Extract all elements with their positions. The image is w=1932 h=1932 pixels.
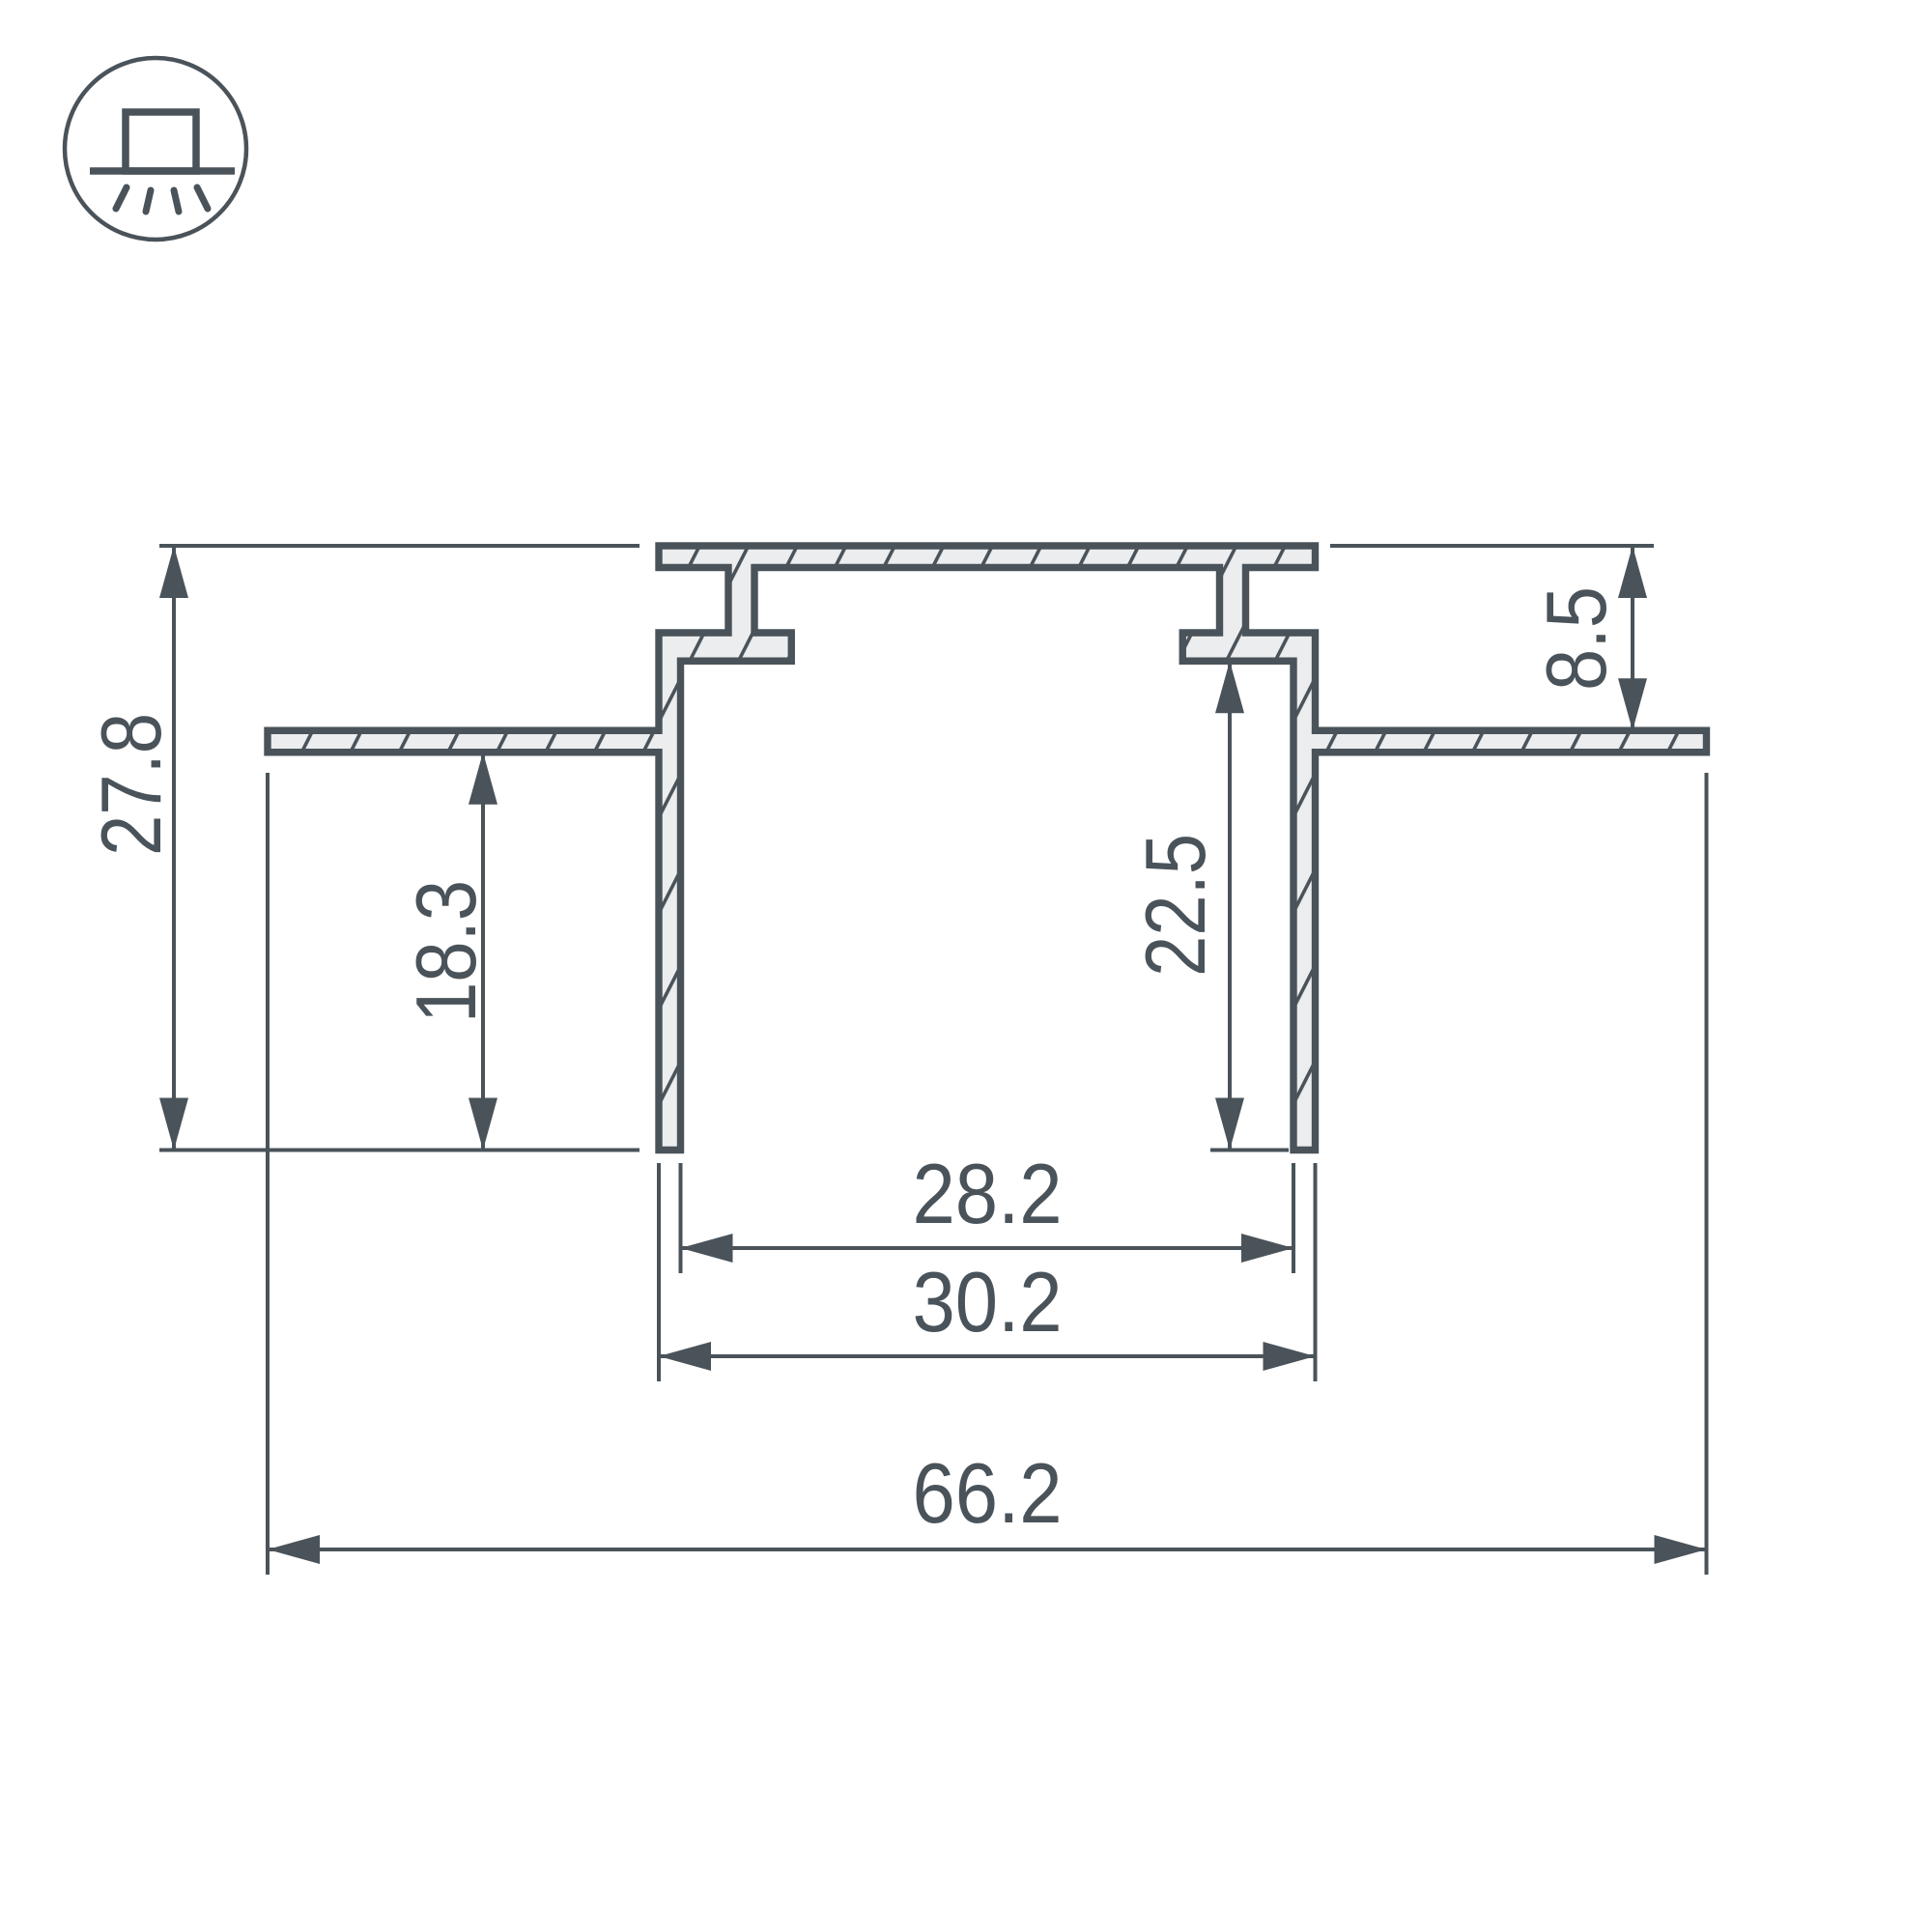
mount-type-icon: [65, 58, 246, 240]
dim-overall-height: 27.8: [83, 546, 639, 1151]
dim-label-inner-depth: 22.5: [1127, 834, 1223, 977]
arrow-right-icon: [1655, 1535, 1707, 1564]
dim-inner-depth: 22.5: [1127, 661, 1289, 1150]
drawing-canvas: 27.8 18.3 22.5 8.5 28.2 3: [0, 0, 1932, 1932]
icon-light-rays: [116, 187, 208, 212]
dim-label-outer-width: 30.2: [913, 1254, 1063, 1350]
dim-recess-height: 8.5: [1330, 546, 1654, 730]
dim-label-height-below-flange: 18.3: [398, 880, 494, 1023]
arrow-up-icon: [469, 753, 497, 805]
dim-height-below-flange: 18.3: [398, 753, 497, 1151]
arrow-down-icon: [1215, 1098, 1244, 1151]
arrow-up-icon: [159, 546, 188, 598]
dim-label-overall-width: 66.2: [913, 1445, 1063, 1541]
arrow-down-icon: [469, 1098, 497, 1151]
arrow-left-icon: [681, 1234, 733, 1263]
icon-fixture-box: [126, 112, 196, 171]
arrow-up-icon: [1215, 661, 1244, 713]
dim-label-inner-width: 28.2: [913, 1146, 1063, 1241]
arrow-left-icon: [659, 1342, 711, 1371]
dim-label-recess-height: 8.5: [1528, 586, 1624, 691]
arrow-right-icon: [1264, 1342, 1316, 1371]
profile-drawing: 27.8 18.3 22.5 8.5 28.2 3: [0, 0, 1932, 1932]
dim-label-overall-height: 27.8: [83, 713, 179, 856]
icon-circle: [65, 58, 246, 240]
arrow-right-icon: [1241, 1234, 1293, 1263]
arrow-down-icon: [159, 1098, 188, 1151]
arrow-left-icon: [268, 1535, 320, 1564]
